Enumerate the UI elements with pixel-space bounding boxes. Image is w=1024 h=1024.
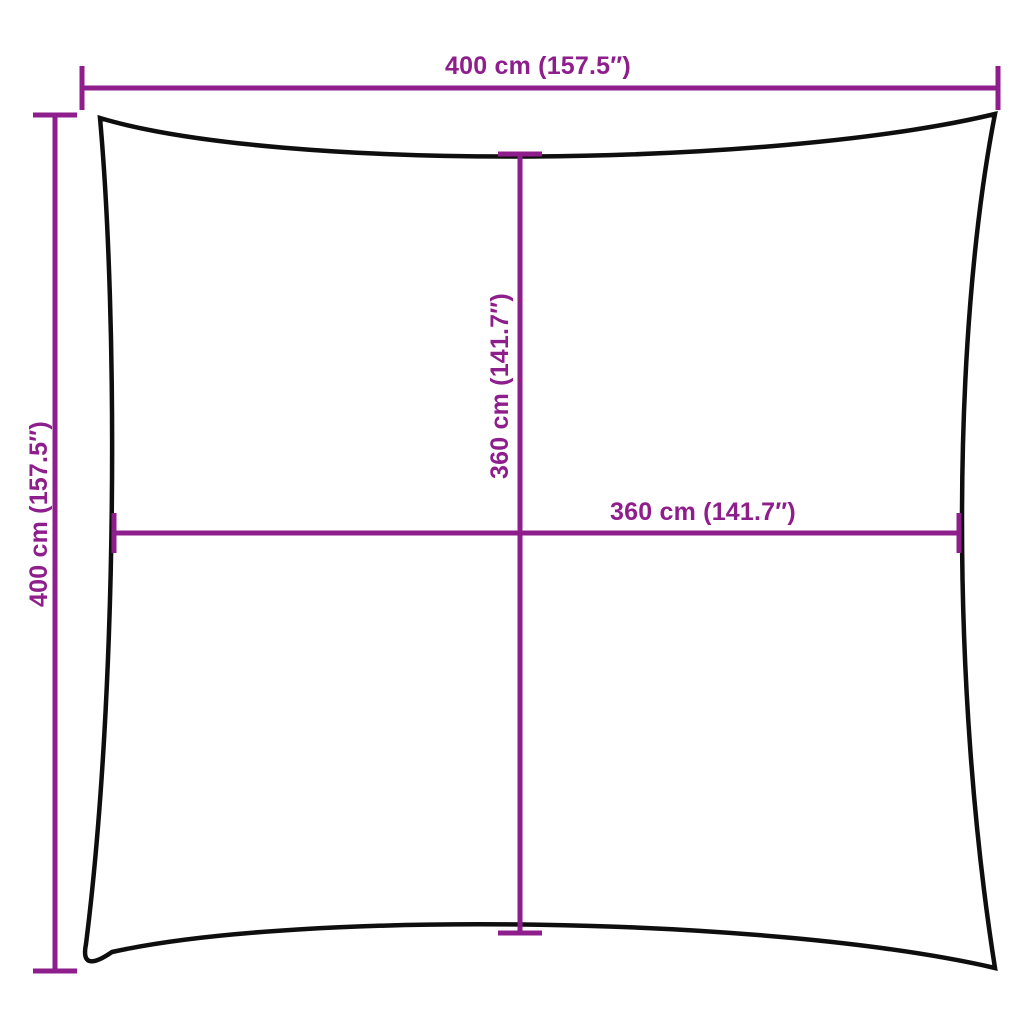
dimension-labels: 400 cm (157.5″) 400 cm (157.5″) 360 cm (…: [25, 52, 796, 607]
center-vertical-dimension-label: 360 cm (141.7″): [486, 293, 514, 479]
diagram-canvas: 400 cm (157.5″) 400 cm (157.5″) 360 cm (…: [0, 0, 1024, 1024]
center-vertical-dimension: [498, 154, 542, 933]
dimension-annotations: 400 cm (157.5″) 400 cm (157.5″) 360 cm (…: [25, 52, 998, 971]
center-horizontal-dimension: [114, 513, 959, 553]
left-dimension-label: 400 cm (157.5″): [25, 421, 53, 607]
dimension-diagram: 400 cm (157.5″) 400 cm (157.5″) 360 cm (…: [0, 0, 1024, 1024]
top-dimension-label: 400 cm (157.5″): [445, 52, 631, 80]
shade-sail-outline: [85, 114, 995, 968]
center-horizontal-dimension-label: 360 cm (141.7″): [610, 498, 796, 526]
